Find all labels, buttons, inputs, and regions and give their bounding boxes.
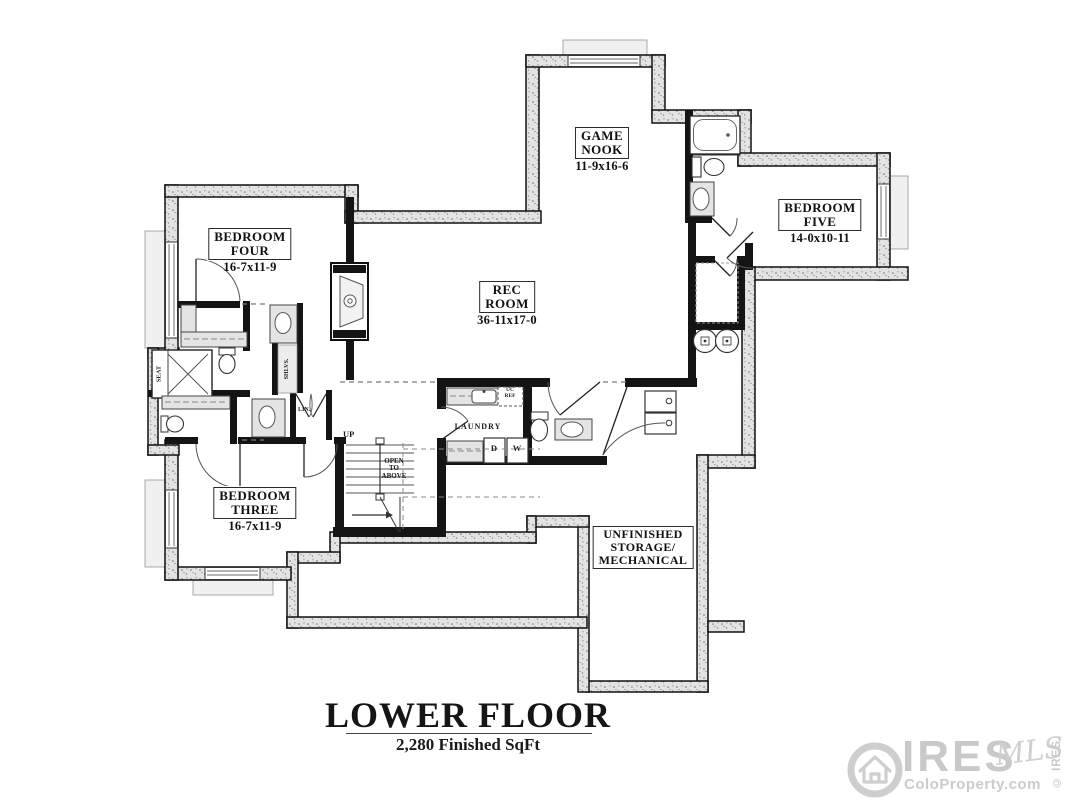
- toilet: [692, 157, 724, 177]
- sink-vanity: [690, 182, 714, 216]
- door-bedroom-three-right: [304, 444, 337, 477]
- room-label-bedroom-four: BEDROOM FOUR 16-7x11-9: [208, 228, 291, 275]
- title-underline: [346, 733, 592, 734]
- door-linen-closet: [296, 394, 326, 417]
- room-dims: 36-11x17-0: [477, 314, 537, 328]
- room-name-box: GAME NOOK: [575, 127, 629, 159]
- label-shelves: SHLVS.: [284, 359, 290, 380]
- floor-title: LOWER FLOOR: [325, 694, 611, 736]
- label-seat: SEAT: [157, 366, 164, 383]
- room-name-box: UNFINISHED STORAGE/ MECHANICAL: [593, 526, 694, 569]
- label-up: UP: [343, 430, 354, 439]
- ires-copyright: © IRES: [1051, 740, 1063, 788]
- room-label-bedroom-three: BEDROOM THREE 16-7x11-9: [213, 487, 296, 534]
- room-dims: 11-9x16-6: [575, 160, 629, 174]
- counter: [447, 441, 483, 462]
- sink-vanity: [252, 399, 285, 437]
- door-mechanical-closet: [713, 259, 737, 276]
- vanity-counter: [181, 305, 247, 347]
- label-open-to-above: OPEN TO ABOVE: [382, 458, 407, 480]
- toilet: [531, 412, 549, 441]
- bathtub: [690, 116, 740, 154]
- ires-house-icon: [845, 740, 905, 800]
- sink-vanity: [555, 419, 592, 440]
- toilet: [161, 416, 184, 432]
- room-name-box: BEDROOM FIVE: [778, 199, 861, 231]
- window-bedroom-three-bottom: [205, 568, 260, 580]
- water-heater: [694, 330, 739, 353]
- sink-vanity: [270, 305, 297, 343]
- room-label-game-nook: GAME NOOK 11-9x16-6: [575, 127, 629, 174]
- room-dims: 16-7x11-9: [208, 261, 291, 275]
- window-bedroom-five: [878, 184, 890, 239]
- room-name-box: REC ROOM: [479, 281, 534, 313]
- room-label-unfinished-storage: UNFINISHED STORAGE/ MECHANICAL: [593, 526, 694, 569]
- furnace: [645, 391, 676, 434]
- room-name-box: BEDROOM FOUR: [208, 228, 291, 260]
- label-dryer: D: [491, 444, 497, 453]
- interior-walls: [148, 110, 753, 537]
- fixtures: [152, 116, 740, 463]
- floor-plan-page: GAME NOOK 11-9x16-6 BEDROOM FIVE 14-0x10…: [0, 0, 1072, 804]
- exterior-walls: [148, 55, 908, 692]
- closet-shelving: [696, 263, 738, 323]
- label-linen: LIN.: [298, 407, 310, 413]
- room-label-bedroom-five: BEDROOM FIVE 14-0x10-11: [778, 199, 861, 246]
- label-laundry: LAUNDRY: [455, 423, 502, 431]
- fireplace-niche: [331, 263, 368, 340]
- window-game-nook: [568, 56, 640, 67]
- room-dims: 14-0x10-11: [778, 232, 861, 246]
- door-game-nook-bath: [712, 218, 737, 236]
- floor-subtitle: 2,280 Finished SqFt: [396, 735, 540, 755]
- label-uc-ref: UC REF: [505, 388, 516, 400]
- window-bedroom-three-side: [166, 490, 178, 548]
- door-powder-bath: [548, 382, 600, 415]
- room-label-rec-room: REC ROOM 36-11x17-0: [477, 281, 537, 328]
- coloproperty-text: ColoProperty.com: [904, 776, 1041, 793]
- label-washer: W: [513, 444, 522, 453]
- door-bedroom-three-left: [196, 444, 240, 488]
- toilet: [219, 348, 235, 374]
- room-name-box: BEDROOM THREE: [213, 487, 296, 519]
- room-dims: 16-7x11-9: [213, 520, 296, 534]
- ires-logo: IRES MLS ColoProperty.com © IRES: [845, 738, 1072, 804]
- stairs-direction-arrow: [352, 512, 393, 519]
- vanity-counter: [162, 396, 230, 409]
- window-bedroom-four: [166, 242, 178, 338]
- floor-plan-drawing: [0, 0, 1072, 804]
